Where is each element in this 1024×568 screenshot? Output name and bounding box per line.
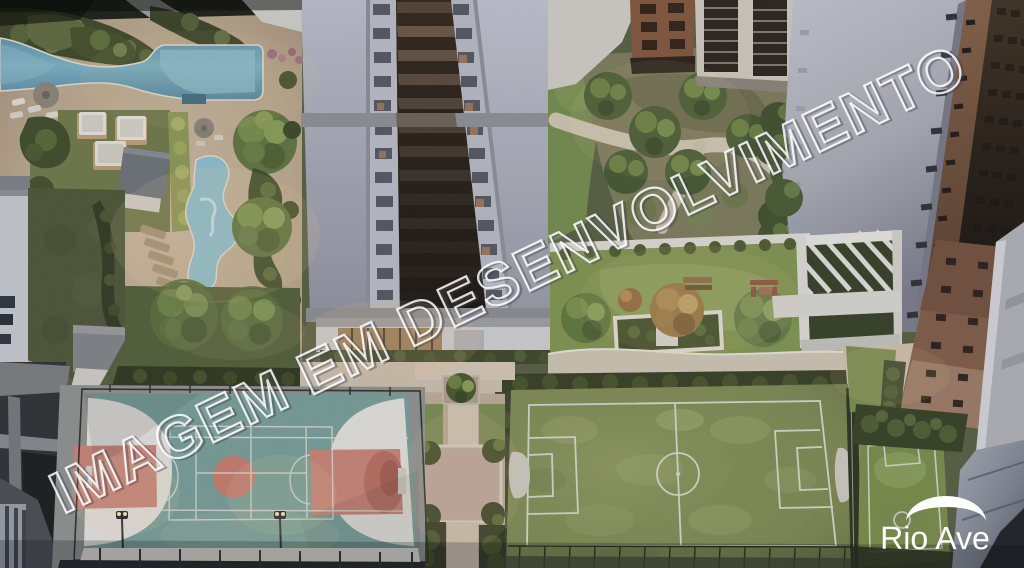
svg-text:IMAGEM EM DESENVOLVIMENTO: IMAGEM EM DESENVOLVIMENTO <box>40 32 976 527</box>
svg-text:Rio Ave: Rio Ave <box>880 520 990 556</box>
